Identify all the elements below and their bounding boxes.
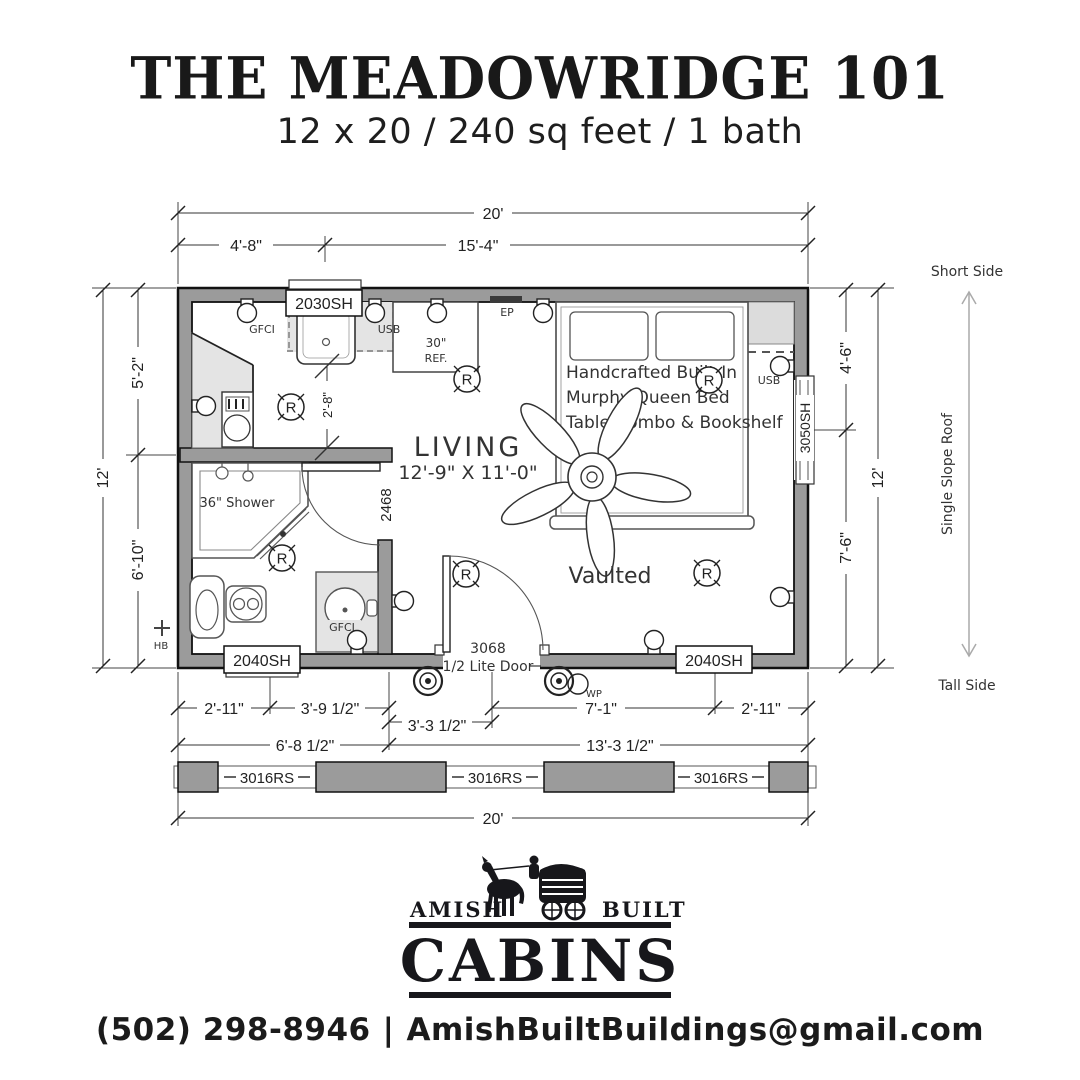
toilet [190,576,224,638]
usb-kitchen-label: USB [378,323,401,336]
flyer-page: THE MEADOWRIDGE 101 12 x 20 / 240 sq fee… [0,0,1080,1080]
dim-bottom-r2-left: 6'-8 1/2" [276,738,335,755]
range-cooktop [222,392,253,447]
exhaust-fan-icon [226,586,266,622]
recessed-light-label: R [461,567,472,584]
gfci-kitchen-label: GFCI [249,323,275,336]
dim-bottom-3: 3'-3 1/2" [408,718,467,735]
ep-label: EP [500,306,514,319]
vaulted-label: Vaulted [568,564,651,589]
hose-bib-icon [154,620,170,636]
dim-bottom-r2-right: 13'-3 1/2" [586,738,653,755]
usb-bed-label: USB [758,374,781,387]
recessed-light-label: R [462,372,473,389]
dim-bottom-5: 2'-11" [741,701,781,718]
ref-size-label: 30" [426,336,447,350]
dim-right-top: 4'-6" [838,342,855,374]
contact-phone: (502) 298-8946 [96,1012,371,1048]
dim-bottom-overall: 20' [483,811,504,828]
window-2040SH-living-label: 2040SH [685,653,743,670]
window-3050SH-label: 3050SH [797,403,813,454]
bed-note-3: Table Combo & Bookshelf [565,413,784,433]
dim-bottom-1: 2'-11" [204,701,244,718]
shower-label: 36" Shower [199,496,275,511]
dim-top-right: 15'-4" [458,238,499,255]
contact-separator: | [383,1012,395,1048]
slope-label: Single Slope Roof [940,412,956,535]
dim-left-bottom: 6'-10" [130,540,147,581]
short-side-label: Short Side [931,264,1003,280]
logo-cabins-text: CABINS [0,927,1080,995]
recessed-light-label: R [277,551,288,568]
living-label: LIVING [414,432,523,463]
hb-label: HB [154,641,169,652]
window-2040SH-bath-label: 2040SH [233,653,291,670]
ref-label: REF. [425,352,448,365]
logo-divider-bottom [409,992,671,998]
bookshelf [748,302,794,352]
aisle-dim-label: 2'-8" [320,392,335,418]
tall-side-label: Tall Side [937,678,995,694]
dim-top-overall: 20' [483,206,504,223]
wp-label: WP [586,689,602,700]
dim-top-left: 4'-8" [230,238,262,255]
dim-left-top: 5'-2" [130,357,147,389]
strip-window-2: 3016RS [468,770,522,787]
roof-annotations: Short Side Single Slope Roof Tall Side [931,264,1003,694]
contact-line: (502) 298-8946|AmishBuiltBuildings@gmail… [0,1012,1080,1048]
strip-window-1: 3016RS [240,770,294,787]
bath-door-label: 2468 [378,488,395,521]
entry-door-type-label: 1/2 Lite Door [443,659,534,675]
dim-left-overall: 12' [95,468,112,489]
window-2040SH-living: 2040SH [676,646,752,673]
dim-bottom-4: 7'-1" [585,701,617,718]
contact-email: AmishBuiltBuildings@gmail.com [406,1012,984,1048]
window-3050SH: 3050SH [794,376,814,484]
dim-right-overall: 12' [870,468,887,489]
strip-window-3: 3016RS [694,770,748,787]
recessed-light-label: R [286,400,297,417]
window-2040SH-bath: 2040SH [224,646,300,677]
dim-right-bottom: 7'-6" [838,532,855,564]
recessed-light-label: R [702,566,713,583]
horse-and-wagon-logo [482,852,600,924]
logo-built-text: BUILT [602,897,687,922]
roof-window-strip: 3016RS 3016RS 3016RS [174,762,816,792]
dim-bottom-2: 3'-9 1/2" [301,701,360,718]
window-2030SH: 2030SH [286,280,362,316]
entry-door-size-label: 3068 [470,641,506,657]
window-2030SH-label: 2030SH [295,296,353,313]
recessed-light-label: R [704,373,715,390]
living-size-label: 12'-9" X 11'-0" [398,462,537,484]
